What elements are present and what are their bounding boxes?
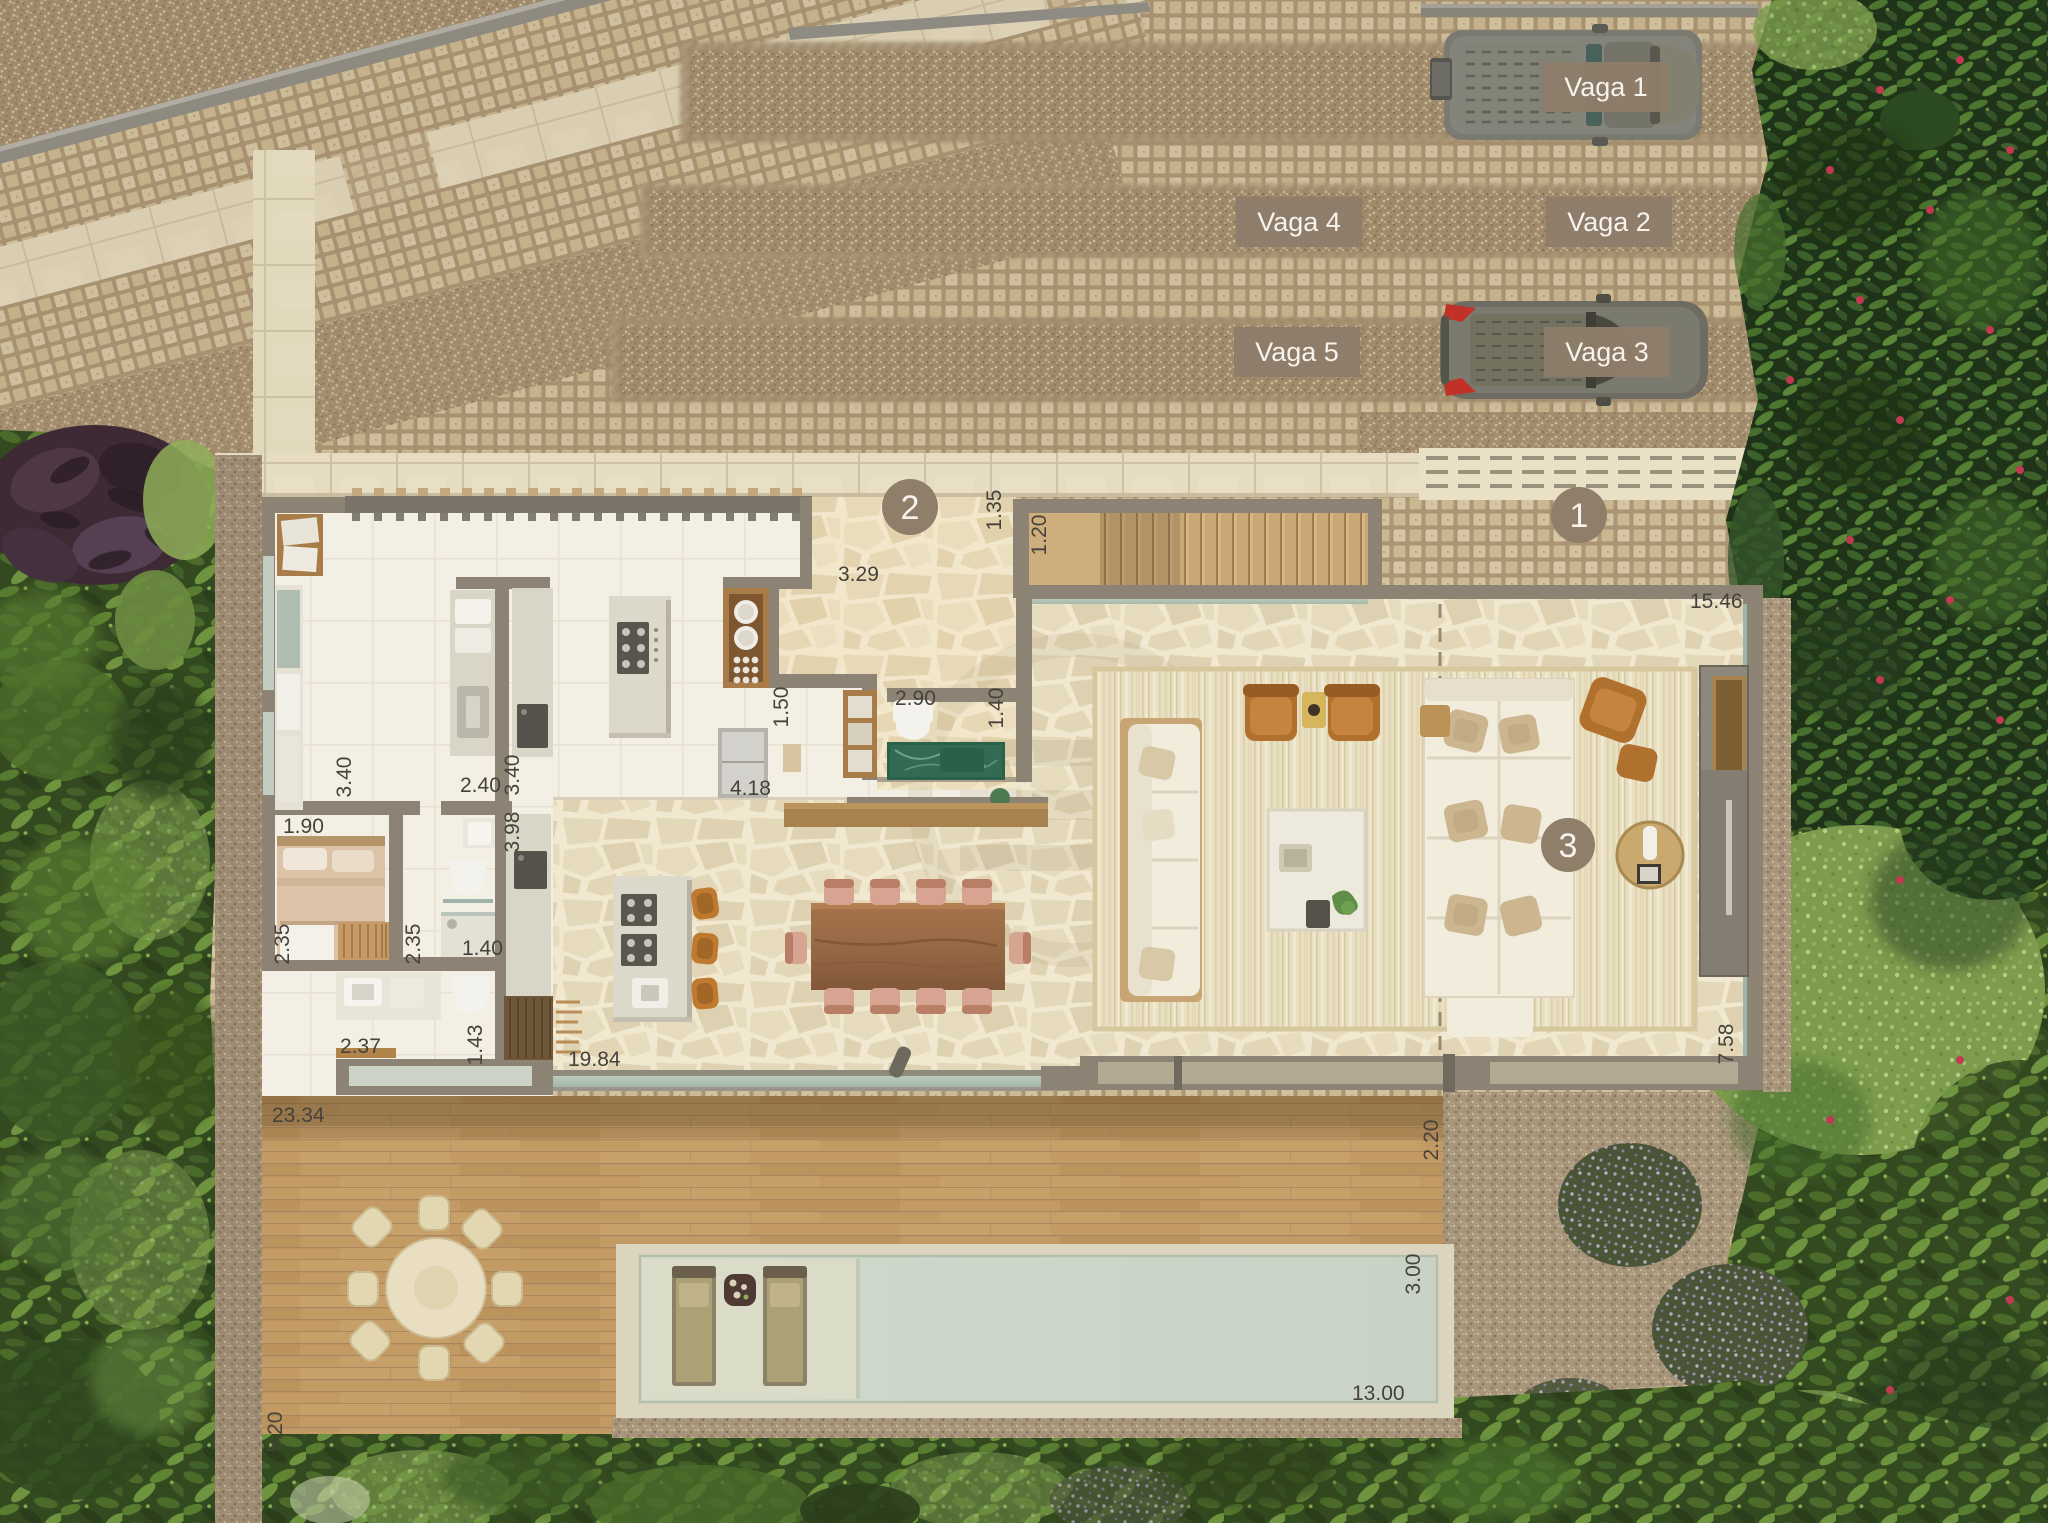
svg-text:7.58: 7.58 [1715, 1024, 1738, 1065]
svg-text:2.35: 2.35 [402, 924, 425, 965]
svg-text:1.43: 1.43 [464, 1025, 487, 1066]
svg-text:4.18: 4.18 [730, 777, 771, 800]
svg-text:1.40: 1.40 [985, 688, 1008, 729]
svg-text:1.50: 1.50 [770, 687, 793, 728]
svg-text:2.20: 2.20 [1420, 1120, 1443, 1161]
svg-text:3.00: 3.00 [1402, 1254, 1425, 1295]
svg-text:3: 3 [1559, 827, 1578, 865]
svg-text:3.98: 3.98 [501, 812, 524, 853]
svg-text:5.20: 5.20 [264, 1412, 287, 1453]
svg-text:Vaga 2: Vaga 2 [1567, 207, 1651, 237]
svg-text:3.40: 3.40 [333, 757, 356, 798]
svg-text:1: 1 [1570, 497, 1589, 535]
svg-text:2.90: 2.90 [895, 687, 936, 710]
svg-text:2: 2 [901, 489, 920, 527]
svg-text:3.40: 3.40 [501, 755, 524, 796]
svg-text:Vaga 3: Vaga 3 [1565, 337, 1649, 367]
svg-text:Vaga 5: Vaga 5 [1255, 337, 1339, 367]
svg-text:Vaga 4: Vaga 4 [1257, 207, 1341, 237]
svg-text:2.35: 2.35 [271, 924, 294, 965]
svg-text:13.00: 13.00 [1352, 1382, 1405, 1405]
svg-text:19.84: 19.84 [568, 1048, 621, 1071]
svg-text:Vaga 1: Vaga 1 [1564, 72, 1648, 102]
svg-text:1.35: 1.35 [983, 490, 1006, 531]
svg-text:3.29: 3.29 [838, 563, 879, 586]
svg-text:2.37: 2.37 [340, 1035, 381, 1058]
svg-text:2.40: 2.40 [460, 774, 501, 797]
svg-text:1.20: 1.20 [1028, 515, 1051, 556]
svg-text:1.40: 1.40 [462, 937, 503, 960]
svg-text:15.46: 15.46 [1690, 590, 1743, 613]
svg-text:1.90: 1.90 [283, 815, 324, 838]
svg-text:23.34: 23.34 [272, 1104, 325, 1127]
